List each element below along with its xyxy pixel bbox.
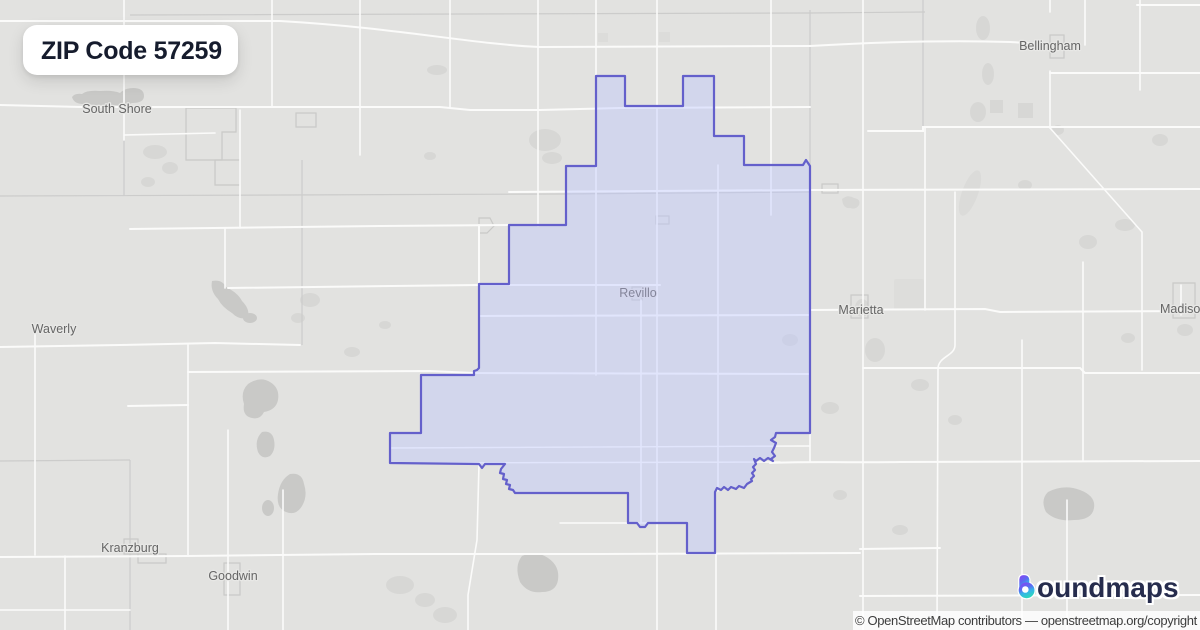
svg-text:Waverly: Waverly — [32, 322, 77, 336]
svg-text:Madison: Madison — [1160, 302, 1200, 316]
svg-text:Bellingham: Bellingham — [1019, 39, 1081, 53]
svg-text:Kranzburg: Kranzburg — [101, 541, 159, 555]
svg-text:South Shore: South Shore — [82, 102, 152, 116]
svg-text:Revillo: Revillo — [619, 286, 657, 300]
svg-text:Marietta: Marietta — [838, 303, 883, 317]
svg-text:Goodwin: Goodwin — [208, 569, 257, 583]
